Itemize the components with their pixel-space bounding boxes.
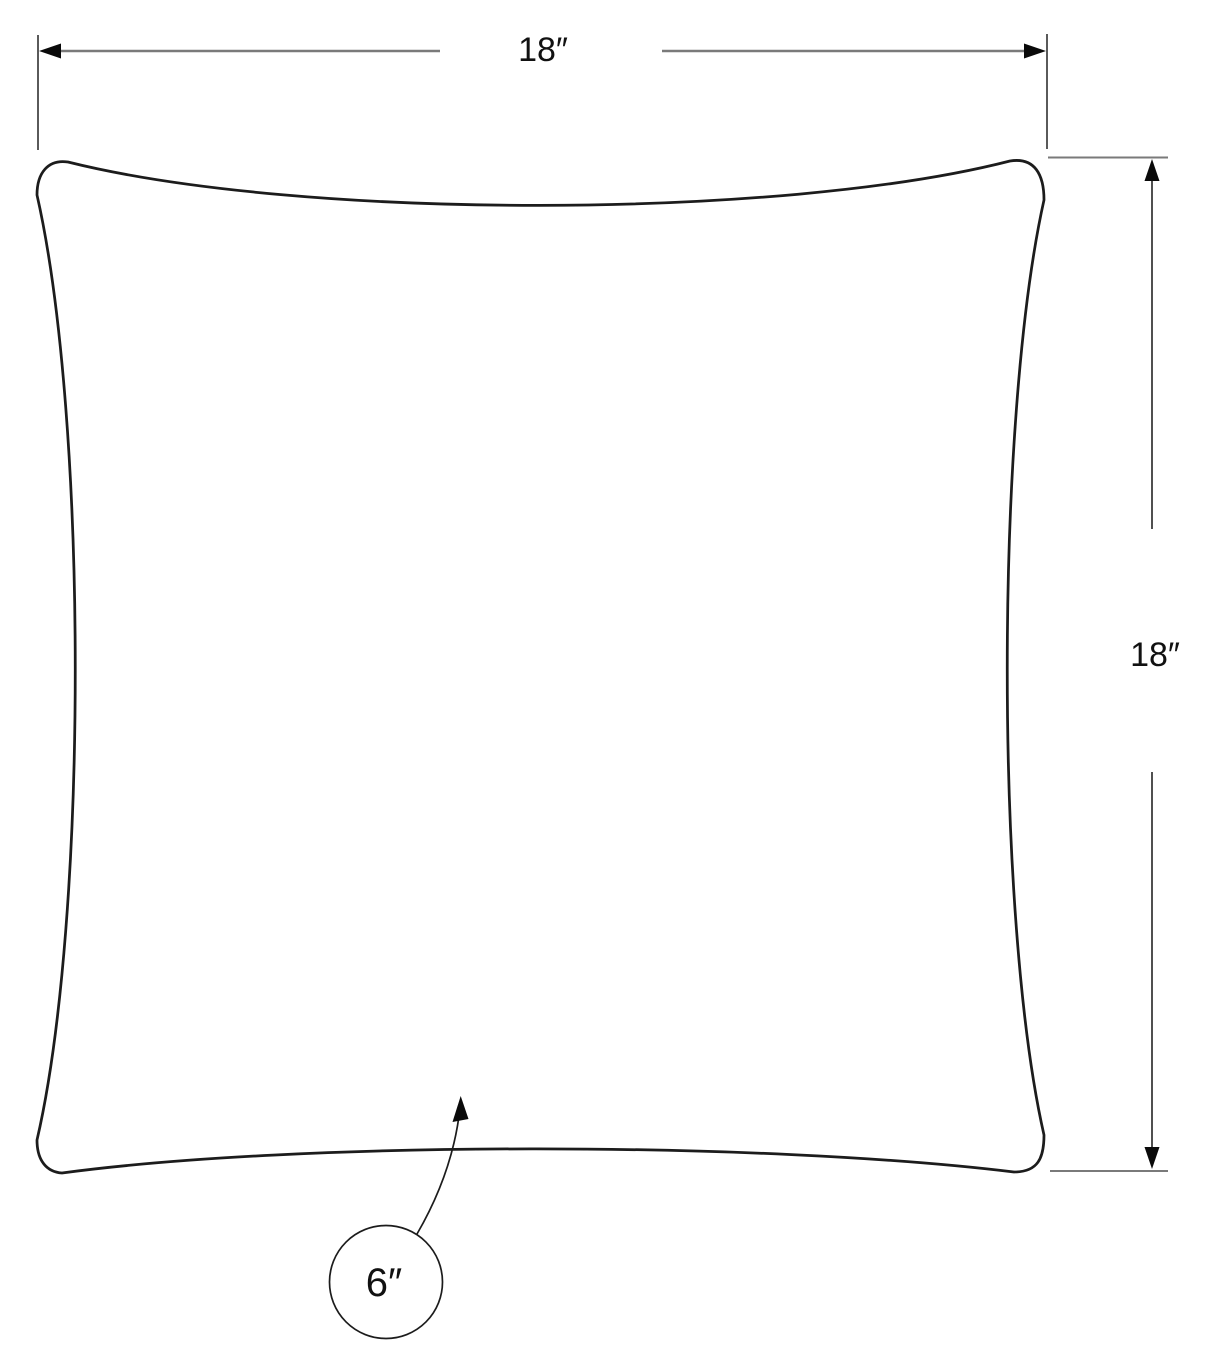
height-dimension: 18″ [1048, 158, 1180, 1172]
depth-leader-line [417, 1108, 460, 1234]
width-dimension: 18″ [38, 31, 1047, 150]
depth-callout: 6″ [330, 1096, 469, 1339]
pillow-outline [37, 160, 1044, 1173]
height-arrow-up-icon [1145, 159, 1160, 181]
height-dimension-label: 18″ [1130, 636, 1180, 674]
width-dimension-label: 18″ [518, 31, 568, 69]
depth-dimension-label: 6″ [366, 1261, 402, 1305]
pillow-dimension-diagram: 18″ 18″ 6″ [0, 0, 1209, 1372]
height-arrow-down-icon [1145, 1147, 1160, 1169]
depth-leader-arrow-icon [453, 1096, 469, 1122]
width-arrow-right-icon [1024, 44, 1046, 59]
diagram-svg: 18″ 18″ 6″ [0, 0, 1209, 1372]
width-arrow-left-icon [39, 44, 61, 59]
